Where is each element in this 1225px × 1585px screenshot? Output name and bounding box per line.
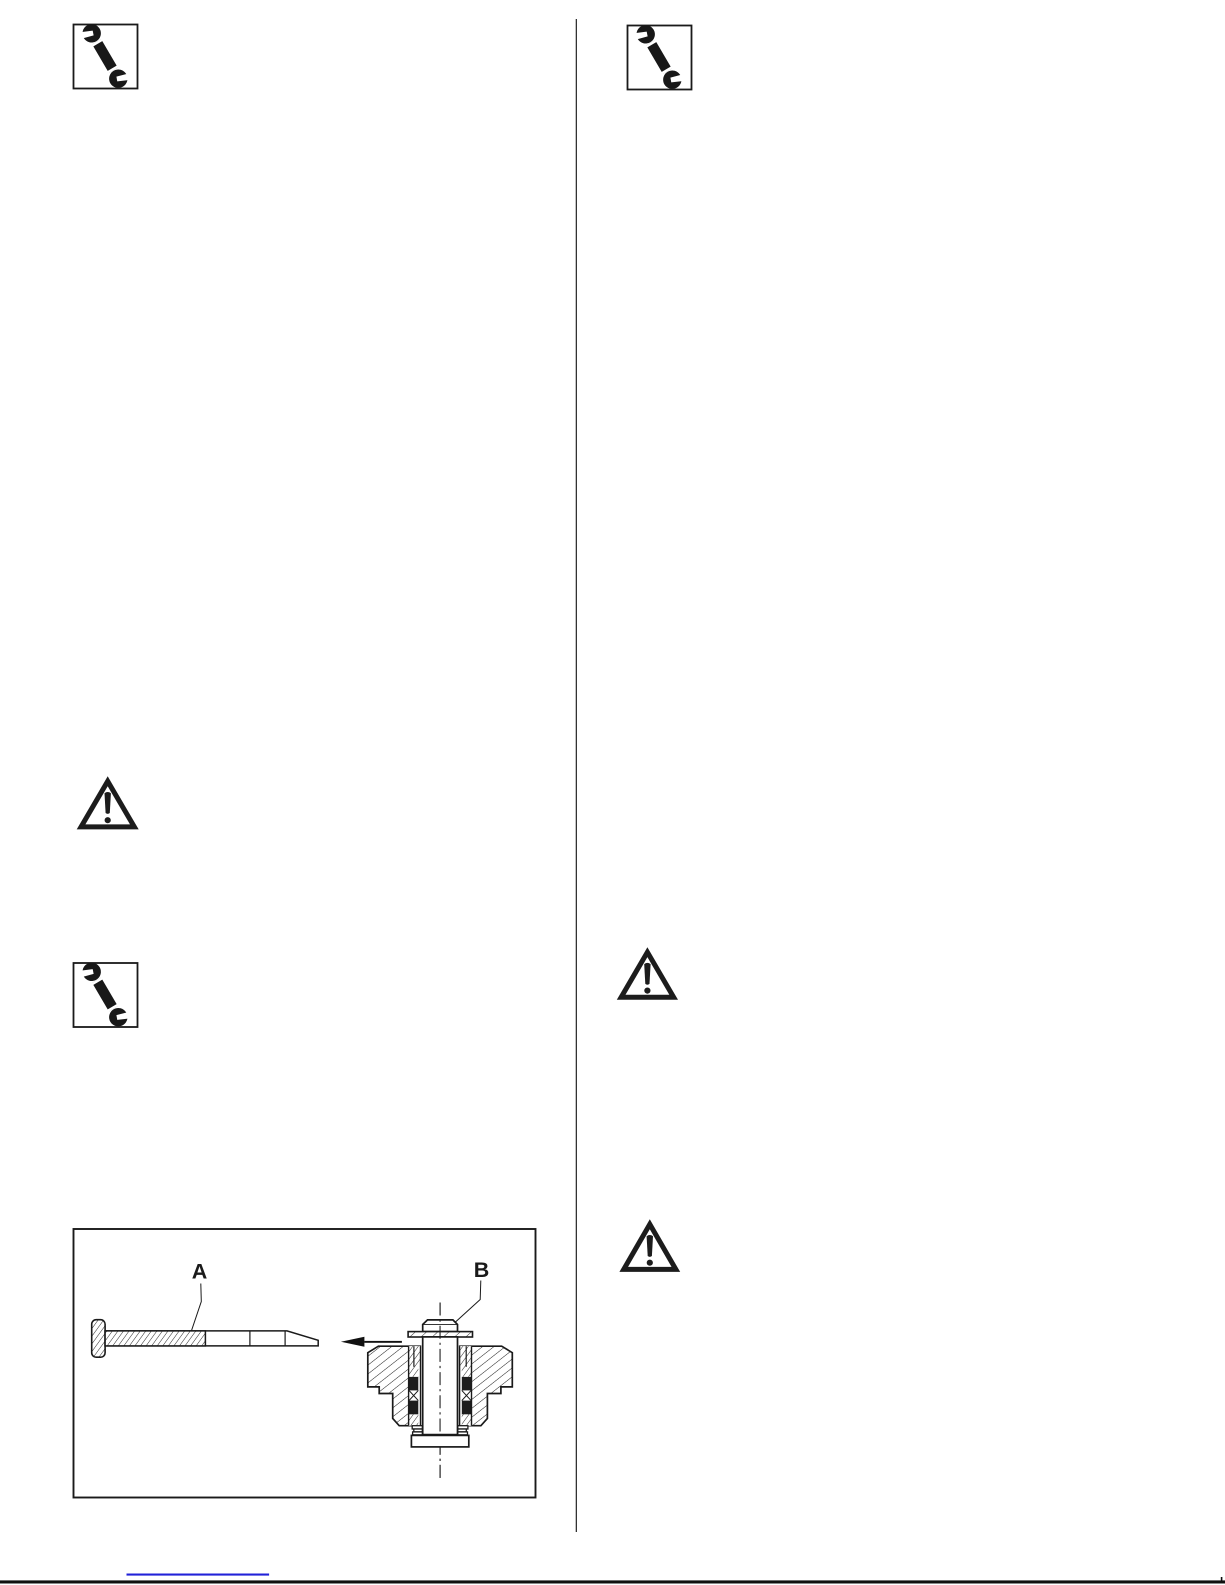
svg-text:A: A bbox=[192, 1260, 208, 1284]
svg-text:B: B bbox=[474, 1258, 490, 1282]
